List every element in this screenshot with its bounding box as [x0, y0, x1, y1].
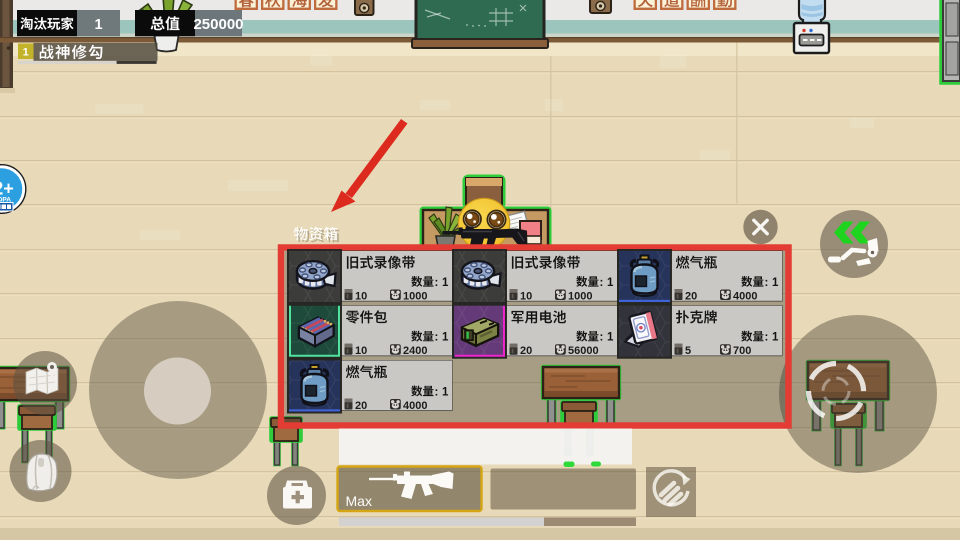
svg-text:20: 20: [520, 345, 532, 357]
svg-text:1: 1: [772, 332, 779, 344]
svg-text:2400: 2400: [403, 345, 427, 357]
svg-text::: :: [435, 332, 439, 344]
svg-text::: :: [600, 277, 604, 289]
svg-text:1: 1: [607, 277, 614, 289]
svg-text:Max: Max: [346, 493, 372, 509]
svg-text:20: 20: [355, 400, 367, 412]
svg-text:1000: 1000: [403, 291, 427, 303]
svg-text:1: 1: [442, 386, 449, 398]
svg-text::: :: [765, 277, 769, 289]
svg-text::: :: [435, 386, 439, 398]
svg-text:56000: 56000: [568, 345, 599, 357]
svg-text:1: 1: [94, 17, 102, 33]
svg-text:1: 1: [607, 332, 614, 344]
svg-text:1: 1: [442, 332, 449, 344]
svg-text:20: 20: [685, 291, 697, 303]
svg-text:250000: 250000: [193, 16, 243, 33]
svg-text:10: 10: [520, 291, 532, 303]
svg-text:700: 700: [733, 345, 751, 357]
svg-text::: :: [435, 277, 439, 289]
svg-text::: :: [600, 332, 604, 344]
svg-text:4000: 4000: [403, 400, 427, 412]
svg-text::: :: [765, 332, 769, 344]
svg-text:1: 1: [23, 47, 29, 59]
svg-text:10: 10: [355, 345, 367, 357]
svg-text:1000: 1000: [568, 291, 592, 303]
svg-text:10: 10: [355, 291, 367, 303]
svg-text:1: 1: [772, 277, 779, 289]
svg-text:2+: 2+: [0, 179, 14, 199]
svg-text:1: 1: [442, 277, 449, 289]
svg-text:4000: 4000: [733, 291, 757, 303]
svg-text:5: 5: [685, 345, 691, 357]
